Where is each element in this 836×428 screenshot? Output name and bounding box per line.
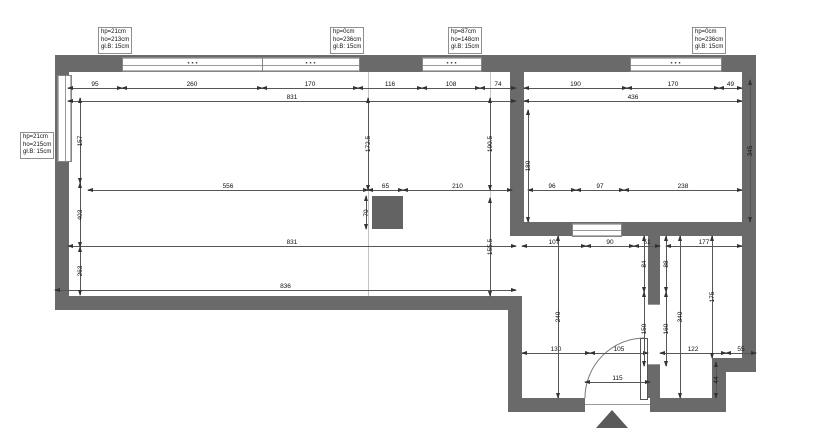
annotation-line: gł.B: 15cm — [101, 44, 129, 52]
dimension-label: 74 — [494, 81, 501, 88]
dimension-label: 44 — [713, 376, 720, 383]
dimension-label: 65 — [382, 183, 389, 190]
dimension-label: 172.5 — [365, 136, 372, 152]
dimension-label: 49 — [727, 81, 734, 88]
dimension-label: 122 — [688, 346, 699, 353]
door-swing-arc — [0, 0, 836, 428]
dimension-label: 175 — [709, 292, 716, 303]
dimension-vertical-190.5: 190.5 — [490, 98, 491, 190]
dimension-horizontal-115: 115 — [585, 382, 650, 383]
dimension-vertical-160: 160 — [666, 292, 667, 366]
dimension-label: 97 — [596, 183, 603, 190]
dimension-label: 210 — [452, 183, 463, 190]
dimension-label: 340 — [677, 312, 684, 323]
dimension-label: 190 — [570, 81, 581, 88]
dimension-horizontal-130: 130 — [522, 353, 590, 354]
dimension-label: 70 — [363, 209, 370, 216]
dimension-horizontal-170: 170 — [627, 88, 719, 89]
dimension-label: 84 — [641, 260, 648, 267]
dimension-label: 105 — [614, 346, 625, 353]
annotation-line: ho=148cm — [451, 37, 479, 45]
dimension-label: 115 — [612, 375, 622, 382]
dimension-vertical-263: 263 — [80, 247, 81, 295]
annotation-line: ho=236cm — [695, 37, 723, 45]
window-annotation-2: hp=0cm ho=236cm gł.B: 15cm — [330, 27, 364, 54]
window-annotation-1: hp=21cm ho=213cm gł.B: 15cm — [98, 27, 132, 54]
dimension-label: 831 — [287, 239, 298, 246]
dimension-label: 831 — [287, 94, 298, 101]
dimension-vertical-175: 175 — [712, 236, 713, 358]
dimension-horizontal-238: 238 — [624, 190, 742, 191]
dimension-vertical-180: 180 — [528, 110, 529, 222]
dimension-label: 345 — [747, 146, 754, 157]
dimension-vertical-155.5: 155.5 — [490, 198, 491, 296]
annotation-line: hp=0cm — [333, 29, 361, 37]
dimension-label: 55 — [737, 346, 744, 353]
dimension-label: 263 — [77, 266, 84, 277]
dimension-label: 177 — [699, 239, 710, 246]
dimension-vertical-403: 403 — [80, 183, 81, 247]
dimension-horizontal-122: 122 — [660, 353, 726, 354]
dimension-label: 556 — [223, 183, 234, 190]
dimension-vertical-44: 44 — [716, 362, 717, 398]
dimension-label: 170 — [305, 81, 316, 88]
dimension-vertical-345: 345 — [750, 80, 751, 222]
window-annotation-4: hp=0cm ho=236cm gł.B: 15cm — [692, 27, 726, 54]
dimension-horizontal-436: 436 — [524, 101, 742, 102]
dimension-label: 155.5 — [487, 239, 494, 255]
north-arrow-icon — [596, 410, 628, 428]
dimension-vertical-84: 84 — [644, 236, 645, 292]
dimension-label: 170 — [668, 81, 679, 88]
annotation-line: gł.B: 15cm — [23, 149, 51, 157]
dimension-horizontal-190: 190 — [524, 88, 627, 89]
dimension-vertical-88: 88 — [666, 236, 667, 292]
dimension-horizontal-90: 90 — [586, 246, 634, 247]
annotation-line: ho=236cm — [333, 37, 361, 45]
dimension-label: 130 — [551, 346, 562, 353]
dimension-label: 836 — [280, 283, 291, 290]
dimension-label: 96 — [548, 183, 555, 190]
dimension-horizontal-831: 831 — [68, 101, 516, 102]
dimension-label: 150 — [641, 324, 648, 335]
dimension-horizontal-95: 95 — [68, 88, 122, 89]
dimension-label: 240 — [555, 312, 562, 323]
dimension-horizontal-116: 116 — [358, 88, 422, 89]
dimension-horizontal-51: 51 — [634, 246, 660, 247]
dimension-label: 90 — [606, 239, 613, 246]
window-annotation-3: hp=87cm ho=148cm gł.B: 15cm — [448, 27, 482, 54]
dimension-horizontal-55: 55 — [726, 353, 756, 354]
annotation-line: hp=0cm — [695, 29, 723, 37]
dimension-label: 88 — [663, 260, 670, 267]
dimension-horizontal-177: 177 — [666, 246, 742, 247]
annotation-line: ho=213cm — [101, 37, 129, 45]
dimension-label: 190.5 — [487, 136, 494, 152]
dimension-vertical-70: 70 — [366, 196, 367, 229]
dimension-label: 238 — [678, 183, 689, 190]
dimension-label: 108 — [446, 81, 457, 88]
dimension-label: 403 — [77, 210, 84, 221]
dimension-horizontal-96: 96 — [528, 190, 576, 191]
annotation-line: hp=21cm — [23, 134, 51, 142]
annotation-line: hp=87cm — [451, 29, 479, 37]
dimension-horizontal-65: 65 — [368, 190, 403, 191]
annotation-line: ho=215cm — [23, 142, 51, 150]
dimension-horizontal-105: 105 — [590, 353, 648, 354]
dimension-horizontal-260: 260 — [122, 88, 262, 89]
dimension-horizontal-108: 108 — [422, 88, 480, 89]
dimension-vertical-340: 340 — [680, 236, 681, 398]
dimension-horizontal-556: 556 — [88, 190, 368, 191]
annotation-line: gł.B: 15cm — [695, 44, 723, 52]
dimension-horizontal-74: 74 — [480, 88, 516, 89]
dimension-vertical-172.5: 172.5 — [368, 98, 369, 190]
dimension-horizontal-831: 831 — [68, 246, 516, 247]
floor-plan: ··· ··· ··· ··· hp=21cm ho=213cm gł.B: 1… — [0, 0, 836, 428]
annotation-line: gł.B: 15cm — [451, 44, 479, 52]
dimension-horizontal-170: 170 — [262, 88, 358, 89]
annotation-line: hp=21cm — [101, 29, 129, 37]
dimension-label: 160 — [663, 324, 670, 335]
window-annotation-5: hp=21cm ho=215cm gł.B: 15cm — [20, 132, 54, 159]
dimension-horizontal-97: 97 — [576, 190, 624, 191]
dimension-horizontal-49: 49 — [719, 88, 742, 89]
dimension-label: 157 — [77, 135, 84, 146]
dimension-vertical-240: 240 — [558, 236, 559, 398]
dimension-horizontal-836: 836 — [55, 290, 516, 291]
annotation-line: gł.B: 15cm — [333, 44, 361, 52]
dimension-vertical-150: 150 — [644, 292, 645, 366]
dimension-label: 260 — [187, 81, 198, 88]
dimension-horizontal-210: 210 — [403, 190, 512, 191]
dimension-horizontal-107: 107 — [522, 246, 586, 247]
dimension-label: 180 — [525, 161, 532, 172]
dimension-label: 95 — [91, 81, 98, 88]
dimension-label: 116 — [385, 81, 395, 88]
dimension-label: 436 — [628, 94, 639, 101]
dimension-vertical-157: 157 — [80, 98, 81, 183]
